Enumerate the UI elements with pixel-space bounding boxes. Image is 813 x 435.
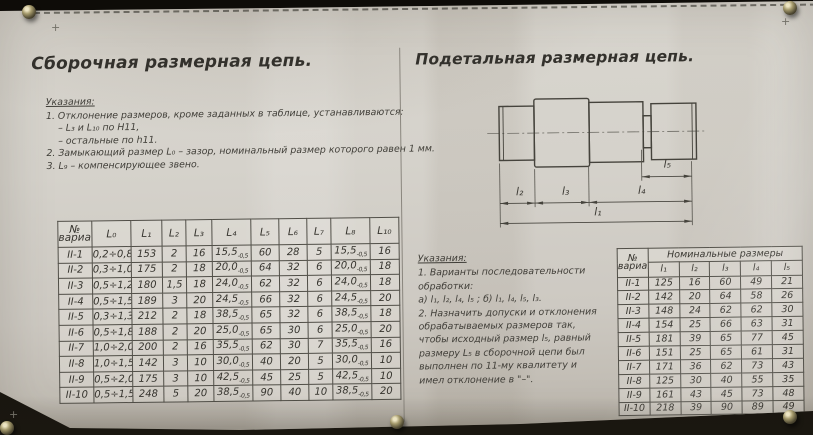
value-cell: 20 — [371, 321, 400, 337]
value-cell: 20 — [280, 354, 308, 370]
value-cell: 62 — [710, 303, 741, 317]
value-cell: 20,0-0,5 — [212, 261, 251, 277]
value-cell: 32 — [279, 276, 307, 292]
value-cell: 30,0-0,5 — [332, 353, 371, 369]
value-cell: 175 — [131, 262, 162, 278]
value-cell: 148 — [649, 304, 680, 318]
value-cell: 89 — [742, 400, 773, 414]
value-cell: 5 — [308, 353, 332, 369]
value-cell: 1,0÷1,5 — [93, 356, 132, 372]
value-cell: 66 — [710, 317, 741, 331]
variant-cell: II-9 — [60, 372, 94, 388]
value-cell: 40 — [711, 373, 742, 387]
value-cell: 200 — [132, 340, 163, 356]
value-cell: 25 — [680, 345, 711, 359]
value-cell: 0,5÷1,5 — [93, 293, 132, 309]
value-cell: 6 — [307, 275, 331, 291]
value-cell: 24,5-0,5 — [332, 290, 371, 306]
value-cell: 30 — [280, 322, 308, 338]
value-cell: 20 — [188, 386, 214, 402]
value-cell: 181 — [649, 332, 680, 346]
value-cell: 58 — [741, 289, 772, 303]
value-cell: 10 — [309, 384, 333, 400]
mounting-screw — [783, 410, 797, 424]
value-cell: 6 — [308, 306, 332, 322]
variant-cell: II-8 — [619, 374, 650, 388]
value-cell: 10 — [187, 355, 213, 371]
sheet-content: Сборочная размерная цепь. Указания: 1. О… — [0, 0, 813, 435]
value-cell: 32 — [279, 260, 307, 276]
mounting-screw — [22, 5, 36, 19]
header-cell: L₃ — [186, 220, 212, 246]
tolerance-subscript: -0,5 — [239, 377, 250, 384]
value-cell: 20,0-0,5 — [331, 259, 370, 275]
header-cell: L₀ — [92, 221, 131, 247]
variant-cell: II-3 — [618, 304, 649, 318]
tolerance-subscript: -0,5 — [238, 284, 249, 291]
value-cell: 30 — [772, 303, 803, 317]
assembly-table: № вариантаL₀L₁L₂L₃L₄L₅L₆L₇L₈L₁₀II-10,2÷0… — [57, 217, 401, 404]
mounting-screw — [0, 421, 14, 435]
dimension-label-l4: l₄ — [638, 184, 646, 197]
value-cell: 30 — [280, 338, 308, 354]
tolerance-subscript: -0,5 — [357, 282, 368, 289]
value-cell: 3 — [164, 371, 188, 387]
value-cell: 24 — [679, 304, 710, 318]
value-cell: 20 — [372, 384, 401, 400]
value-cell: 61 — [742, 345, 773, 359]
value-cell: 38,5-0,5 — [332, 306, 371, 322]
value-cell: 38,5-0,5 — [213, 307, 252, 323]
variant-cell: II-2 — [58, 263, 92, 279]
header-cell: l₄ — [741, 261, 772, 276]
value-cell: 35,5-0,5 — [213, 339, 252, 355]
value-cell: 65 — [252, 307, 280, 323]
value-cell: 45 — [253, 369, 281, 385]
tolerance-subscript: -0,5 — [239, 346, 250, 353]
value-cell: 3 — [163, 293, 187, 309]
tolerance-subscript: -0,5 — [238, 315, 249, 322]
assembly-notes: Указания: 1. Отклонение размеров, кроме … — [46, 93, 392, 174]
value-cell: 16 — [186, 246, 212, 262]
tolerance-subscript: -0,5 — [358, 376, 369, 383]
notes-lines: 1. Отклонение размеров, кроме заданных в… — [46, 106, 392, 173]
value-cell: 175 — [133, 371, 164, 387]
value-cell: 18 — [370, 259, 399, 275]
dimension-label-l2: l₂ — [516, 185, 524, 198]
value-cell: 188 — [132, 324, 163, 340]
tolerance-subscript: -0,5 — [357, 313, 368, 320]
variant-cell: II-4 — [618, 318, 649, 332]
value-cell: 142 — [132, 355, 163, 371]
value-cell: 180 — [131, 277, 162, 293]
note-line: имел отклонение в "–". — [419, 372, 619, 388]
tolerance-subscript: -0,5 — [358, 360, 369, 367]
value-cell: 16 — [371, 337, 400, 353]
value-cell: 24,5-0,5 — [213, 292, 252, 308]
header-cell: L₁ — [131, 220, 162, 246]
value-cell: 62 — [741, 303, 772, 317]
value-cell: 0,3÷1,3 — [93, 309, 132, 325]
value-cell: 42,5-0,5 — [333, 368, 372, 384]
dimension-label-l5: l₅ — [664, 157, 672, 170]
value-cell: 10 — [371, 352, 400, 368]
value-cell: 28 — [279, 244, 307, 260]
value-cell: 20 — [187, 292, 213, 308]
value-cell: 189 — [132, 293, 163, 309]
header-cell: № варианта — [58, 221, 92, 247]
value-cell: 90 — [253, 385, 281, 401]
note-line: 2. Назначить допуски и отклонения — [418, 305, 618, 321]
value-cell: 64 — [710, 289, 741, 303]
value-cell: 20 — [679, 290, 710, 304]
value-cell: 49 — [741, 275, 772, 289]
value-cell: 154 — [649, 318, 680, 332]
value-cell: 0,5÷1,5 — [94, 387, 133, 403]
notes-lines: 1. Варианты последовательностиобработки:… — [418, 264, 619, 387]
header-cell: L₇ — [307, 218, 331, 244]
value-cell: 20 — [371, 290, 400, 306]
variant-cell: II-4 — [59, 294, 93, 310]
value-cell: 38,5-0,5 — [214, 385, 253, 401]
value-cell: 39 — [681, 401, 712, 415]
value-cell: 62 — [252, 338, 280, 354]
value-cell: 65 — [711, 331, 742, 345]
detail-section: Подетальная размерная цепь. — [0, 0, 810, 1]
value-cell: 3 — [163, 355, 187, 371]
value-cell: 90 — [711, 401, 742, 415]
table-row: II-1021839908949 — [619, 400, 804, 416]
value-cell: 55 — [742, 372, 773, 386]
value-cell: 26 — [772, 289, 803, 303]
drawing-sheet: Сборочная размерная цепь. Указания: 1. О… — [0, 0, 813, 435]
header-cell: № варианта — [617, 248, 648, 277]
value-cell: 5 — [309, 369, 333, 385]
notes-heading: Указания: — [418, 250, 618, 266]
value-cell: 30 — [680, 373, 711, 387]
value-cell: 30,0-0,5 — [213, 354, 252, 370]
value-cell: 45 — [772, 330, 803, 344]
value-cell: 16 — [679, 276, 710, 290]
shaft-drawing: l₅ l₂ l₃ l₄ l₁ — [481, 90, 813, 234]
value-cell: 65 — [711, 345, 742, 359]
value-cell: 151 — [649, 346, 680, 360]
mounting-screw — [390, 415, 404, 429]
detail-notes: Указания: 1. Варианты последовательности… — [418, 250, 620, 387]
variant-cell: II-6 — [618, 346, 649, 360]
value-cell: 31 — [772, 316, 803, 330]
value-cell: 60 — [710, 276, 741, 290]
value-cell: 6 — [308, 291, 332, 307]
value-cell: 16 — [370, 243, 399, 259]
value-cell: 62 — [251, 276, 279, 292]
variant-cell: II-7 — [59, 341, 93, 357]
value-cell: 0,3÷1,0 — [92, 262, 131, 278]
register-mark: + — [51, 22, 60, 33]
header-cell: l₁ — [648, 262, 679, 277]
value-cell: 171 — [649, 360, 680, 374]
value-cell: 5 — [164, 386, 188, 402]
header-cell: L₈ — [331, 218, 370, 244]
dimension-label-l1: l₁ — [594, 205, 602, 218]
value-cell: 25 — [680, 318, 711, 332]
tolerance-subscript: -0,5 — [238, 299, 249, 306]
value-cell: 31 — [772, 344, 803, 358]
header-cell: L₆ — [279, 218, 307, 244]
value-cell: 0,2÷0,8 — [92, 247, 131, 263]
tolerance-subscript: -0,5 — [239, 362, 250, 369]
header-cell: l₅ — [771, 260, 802, 275]
variant-cell: II-1 — [617, 277, 648, 291]
value-cell: 64 — [251, 260, 279, 276]
value-cell: 43 — [773, 358, 804, 372]
variant-cell: II-3 — [58, 278, 92, 294]
value-cell: 48 — [773, 386, 804, 400]
variant-cell: II-10 — [60, 387, 94, 403]
value-cell: 2 — [163, 324, 187, 340]
variant-cell: II-1 — [58, 247, 92, 263]
value-cell: 35 — [773, 372, 804, 386]
tolerance-subscript: -0,5 — [357, 267, 368, 274]
value-cell: 32 — [280, 307, 308, 323]
value-cell: 18 — [371, 306, 400, 322]
detail-title: Подетальная размерная цепь. — [415, 47, 694, 68]
value-cell: 43 — [680, 387, 711, 401]
shaft-outline — [481, 90, 813, 234]
value-cell: 24,0-0,5 — [331, 275, 370, 291]
assembly-title: Сборочная размерная цепь. — [31, 51, 312, 74]
value-cell: 1,5 — [162, 277, 186, 293]
header-cell: l₃ — [710, 261, 741, 276]
value-cell: 60 — [251, 245, 279, 261]
dimension-label-l3: l₃ — [562, 185, 570, 198]
variant-cell: II-5 — [618, 332, 649, 346]
variant-cell: II-6 — [59, 325, 93, 341]
value-cell: 6 — [307, 260, 331, 276]
value-cell: 1,0÷2,0 — [93, 340, 132, 356]
note-line: чтобы исходный размер l₅, равный — [419, 332, 619, 348]
tolerance-subscript: -0,5 — [358, 391, 369, 398]
variant-cell: II-7 — [619, 360, 650, 374]
value-cell: 18 — [186, 277, 212, 293]
value-cell: 125 — [648, 276, 679, 290]
value-cell: 248 — [133, 386, 164, 402]
value-cell: 73 — [742, 359, 773, 373]
value-cell: 15,5-0,5 — [331, 244, 370, 260]
tolerance-subscript: -0,5 — [357, 329, 368, 336]
value-cell: 65 — [252, 323, 280, 339]
value-cell: 25 — [281, 369, 309, 385]
variant-cell: II-10 — [619, 402, 650, 416]
register-mark: + — [9, 409, 18, 420]
value-cell: 10 — [188, 370, 214, 386]
value-cell: 38,5-0,5 — [333, 384, 372, 400]
tolerance-subscript: -0,5 — [238, 268, 249, 275]
value-cell: 21 — [772, 275, 803, 289]
value-cell: 18 — [187, 308, 213, 324]
value-cell: 32 — [280, 291, 308, 307]
value-cell: 66 — [252, 291, 280, 307]
value-cell: 142 — [648, 290, 679, 304]
value-cell: 63 — [741, 317, 772, 331]
tolerance-subscript: -0,5 — [238, 330, 249, 337]
value-cell: 25,0-0,5 — [213, 323, 252, 339]
value-cell: 2 — [163, 308, 187, 324]
header-cell: L₅ — [251, 219, 279, 245]
tolerance-subscript: -0,5 — [239, 393, 250, 400]
value-cell: 20 — [187, 323, 213, 339]
value-cell: 161 — [650, 387, 681, 401]
tolerance-subscript: -0,5 — [238, 252, 249, 259]
value-cell: 42,5-0,5 — [214, 370, 253, 386]
value-cell: 0,5÷1,8 — [93, 324, 132, 340]
value-cell: 2 — [162, 246, 186, 262]
variant-cell: II-5 — [59, 309, 93, 325]
header-cell: L₁₀ — [370, 217, 399, 243]
variant-cell: II-8 — [59, 356, 93, 372]
value-cell: 24,0-0,5 — [212, 276, 251, 292]
value-cell: 0,5÷1,2 — [92, 278, 131, 294]
value-cell: 39 — [680, 332, 711, 346]
detail-table: № вариантаНоминальные размерыl₁l₂l₃l₄l₅I… — [617, 246, 805, 417]
value-cell: 77 — [741, 331, 772, 345]
value-cell: 218 — [650, 401, 681, 415]
value-cell: 0,5÷2,0 — [94, 371, 133, 387]
value-cell: 62 — [711, 359, 742, 373]
value-cell: 18 — [186, 261, 212, 277]
value-cell: 40 — [281, 385, 309, 401]
register-mark: + — [781, 16, 790, 27]
variant-cell: II-9 — [619, 388, 650, 402]
value-cell: 6 — [308, 322, 332, 338]
value-cell: 2 — [162, 261, 186, 277]
mounting-screw — [783, 1, 797, 15]
value-cell: 16 — [187, 339, 213, 355]
value-cell: 153 — [131, 246, 162, 262]
value-cell: 40 — [252, 354, 280, 370]
value-cell: 35,5-0,5 — [332, 337, 371, 353]
value-cell: 212 — [132, 309, 163, 325]
value-cell: 36 — [680, 359, 711, 373]
header-cell: L₂ — [162, 220, 186, 246]
value-cell: 10 — [372, 368, 401, 384]
value-cell: 15,5-0,5 — [212, 245, 251, 261]
tolerance-subscript: -0,5 — [357, 298, 368, 305]
value-cell: 18 — [370, 274, 399, 290]
value-cell: 7 — [308, 338, 332, 354]
table-row: II-100,5÷1,524852038,5-0,590401038,5-0,5… — [60, 384, 401, 404]
header-cell: L₄ — [212, 219, 251, 245]
header-cell: l₂ — [679, 261, 710, 276]
tolerance-subscript: -0,5 — [357, 251, 368, 258]
value-cell: 45 — [711, 387, 742, 401]
photo-frame: Сборочная размерная цепь. Указания: 1. О… — [0, 0, 813, 435]
value-cell: 2 — [163, 339, 187, 355]
value-cell: 125 — [649, 374, 680, 388]
value-cell: 5 — [307, 244, 331, 260]
value-cell: 73 — [742, 386, 773, 400]
variant-cell: II-2 — [618, 291, 649, 305]
assembly-section: Сборочная размерная цепь. Указания: 1. О… — [0, 0, 810, 1]
tolerance-subscript: -0,5 — [358, 344, 369, 351]
value-cell: 25,0-0,5 — [332, 322, 371, 338]
